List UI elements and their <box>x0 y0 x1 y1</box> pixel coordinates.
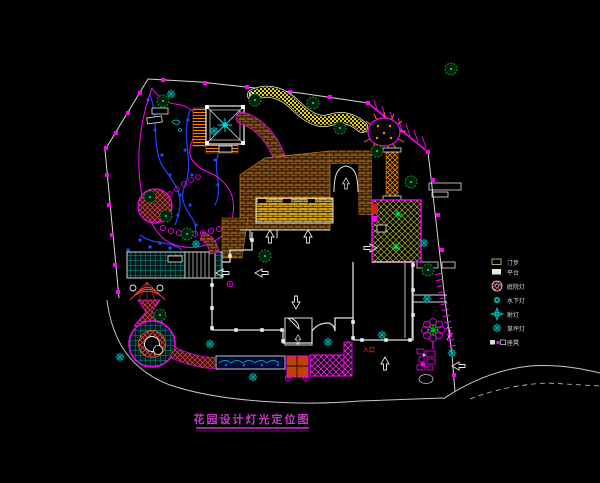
pergola-column <box>383 148 401 200</box>
legend-label: 汀步 <box>507 259 519 267</box>
courtyard-lamp-icon <box>492 281 502 291</box>
legend-label: 草坪灯 <box>507 325 525 333</box>
path-light <box>227 281 233 287</box>
title-block: 花园设计灯光定位图 <box>194 412 311 431</box>
stepping-stone-icon <box>492 259 501 265</box>
legend: 汀步 平台 庭院灯 水下灯 射灯 <box>490 259 525 347</box>
legend-label: 射灯 <box>507 311 519 319</box>
bench-icon <box>490 340 506 345</box>
garden-furniture <box>147 108 182 131</box>
magenta-paved-path <box>310 355 348 376</box>
porch <box>285 318 312 345</box>
garden-table <box>285 356 309 381</box>
bench <box>219 146 232 152</box>
drawing-title: 花园设计灯光定位图 <box>194 412 311 426</box>
sunburst-planter <box>362 112 406 150</box>
round-pond <box>129 321 175 367</box>
checkered-courtyard <box>372 200 421 262</box>
legend-item: 水下灯 <box>494 297 525 305</box>
flower-planter <box>422 319 445 350</box>
legend-item: 平台 <box>492 269 519 277</box>
spot-lamp-icon <box>491 308 503 320</box>
planter-boxes <box>417 183 461 268</box>
arch-entrance <box>334 166 358 192</box>
legend-item: 汀步 <box>492 259 519 267</box>
water-channel <box>216 356 285 369</box>
bbq-structure <box>417 349 435 370</box>
pavilion-finial-icon <box>218 118 232 132</box>
brick-path-south <box>172 352 215 363</box>
legend-label: 水下灯 <box>507 297 525 305</box>
hedge-comb <box>435 273 456 346</box>
magenta-paved-spur <box>344 342 352 376</box>
legend-label: 座凳 <box>507 339 519 347</box>
garden-plan-drawing: 入口 汀步 平台 庭院灯 水下灯 <box>0 0 600 483</box>
legend-item: 庭院灯 <box>492 281 525 291</box>
pavilion <box>193 105 245 153</box>
lawn-lamp-icon <box>493 324 502 333</box>
cad-canvas: 入口 汀步 平台 庭院灯 水下灯 <box>0 0 600 483</box>
legend-item: 射灯 <box>491 308 519 320</box>
entrance-label: 入口 <box>362 347 375 354</box>
legend-item: 座凳 <box>490 339 519 347</box>
terrace <box>222 150 372 258</box>
platform-icon <box>492 269 501 275</box>
legend-label: 庭院灯 <box>507 283 525 291</box>
legend-label: 平台 <box>507 269 519 277</box>
legend-item: 草坪灯 <box>493 324 526 334</box>
wavy-path <box>250 92 363 127</box>
underwater-lamp-icon <box>494 297 500 303</box>
